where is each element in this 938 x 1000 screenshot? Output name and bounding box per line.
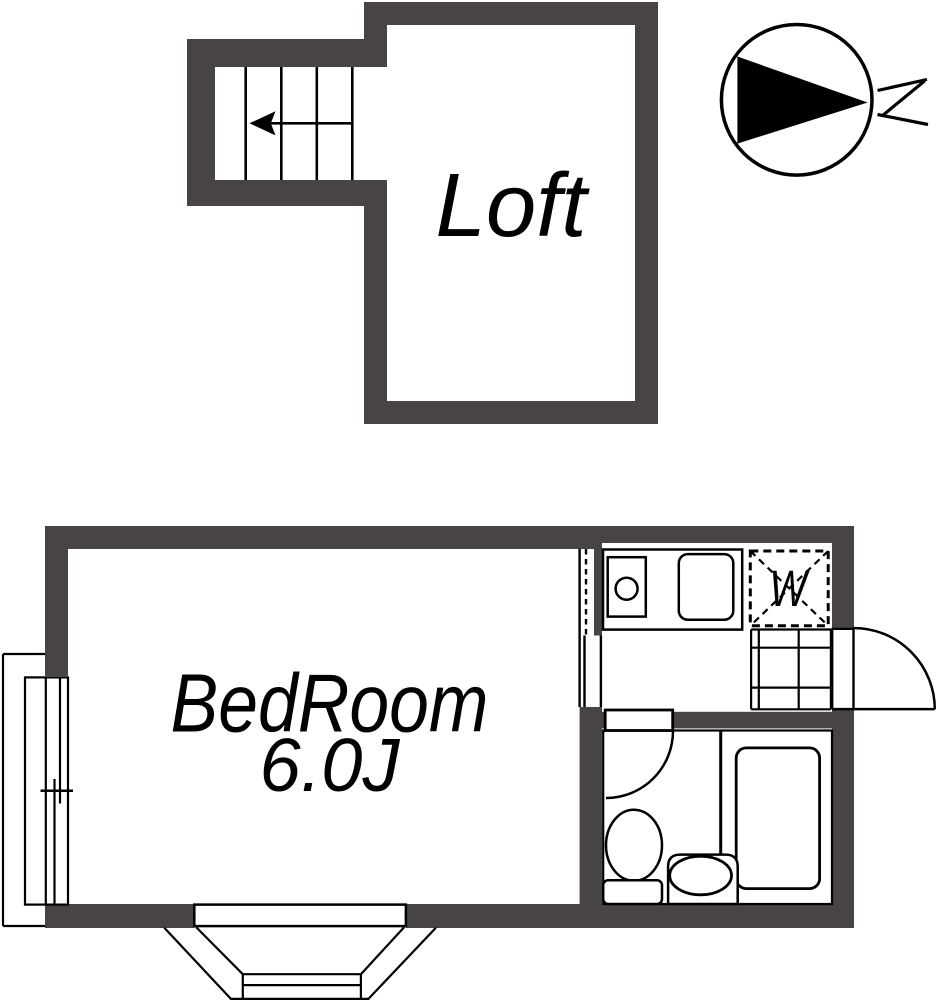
svg-text:W: W [770, 560, 811, 617]
svg-text:6.0J: 6.0J [260, 723, 401, 807]
svg-text:Loft: Loft [436, 156, 591, 256]
